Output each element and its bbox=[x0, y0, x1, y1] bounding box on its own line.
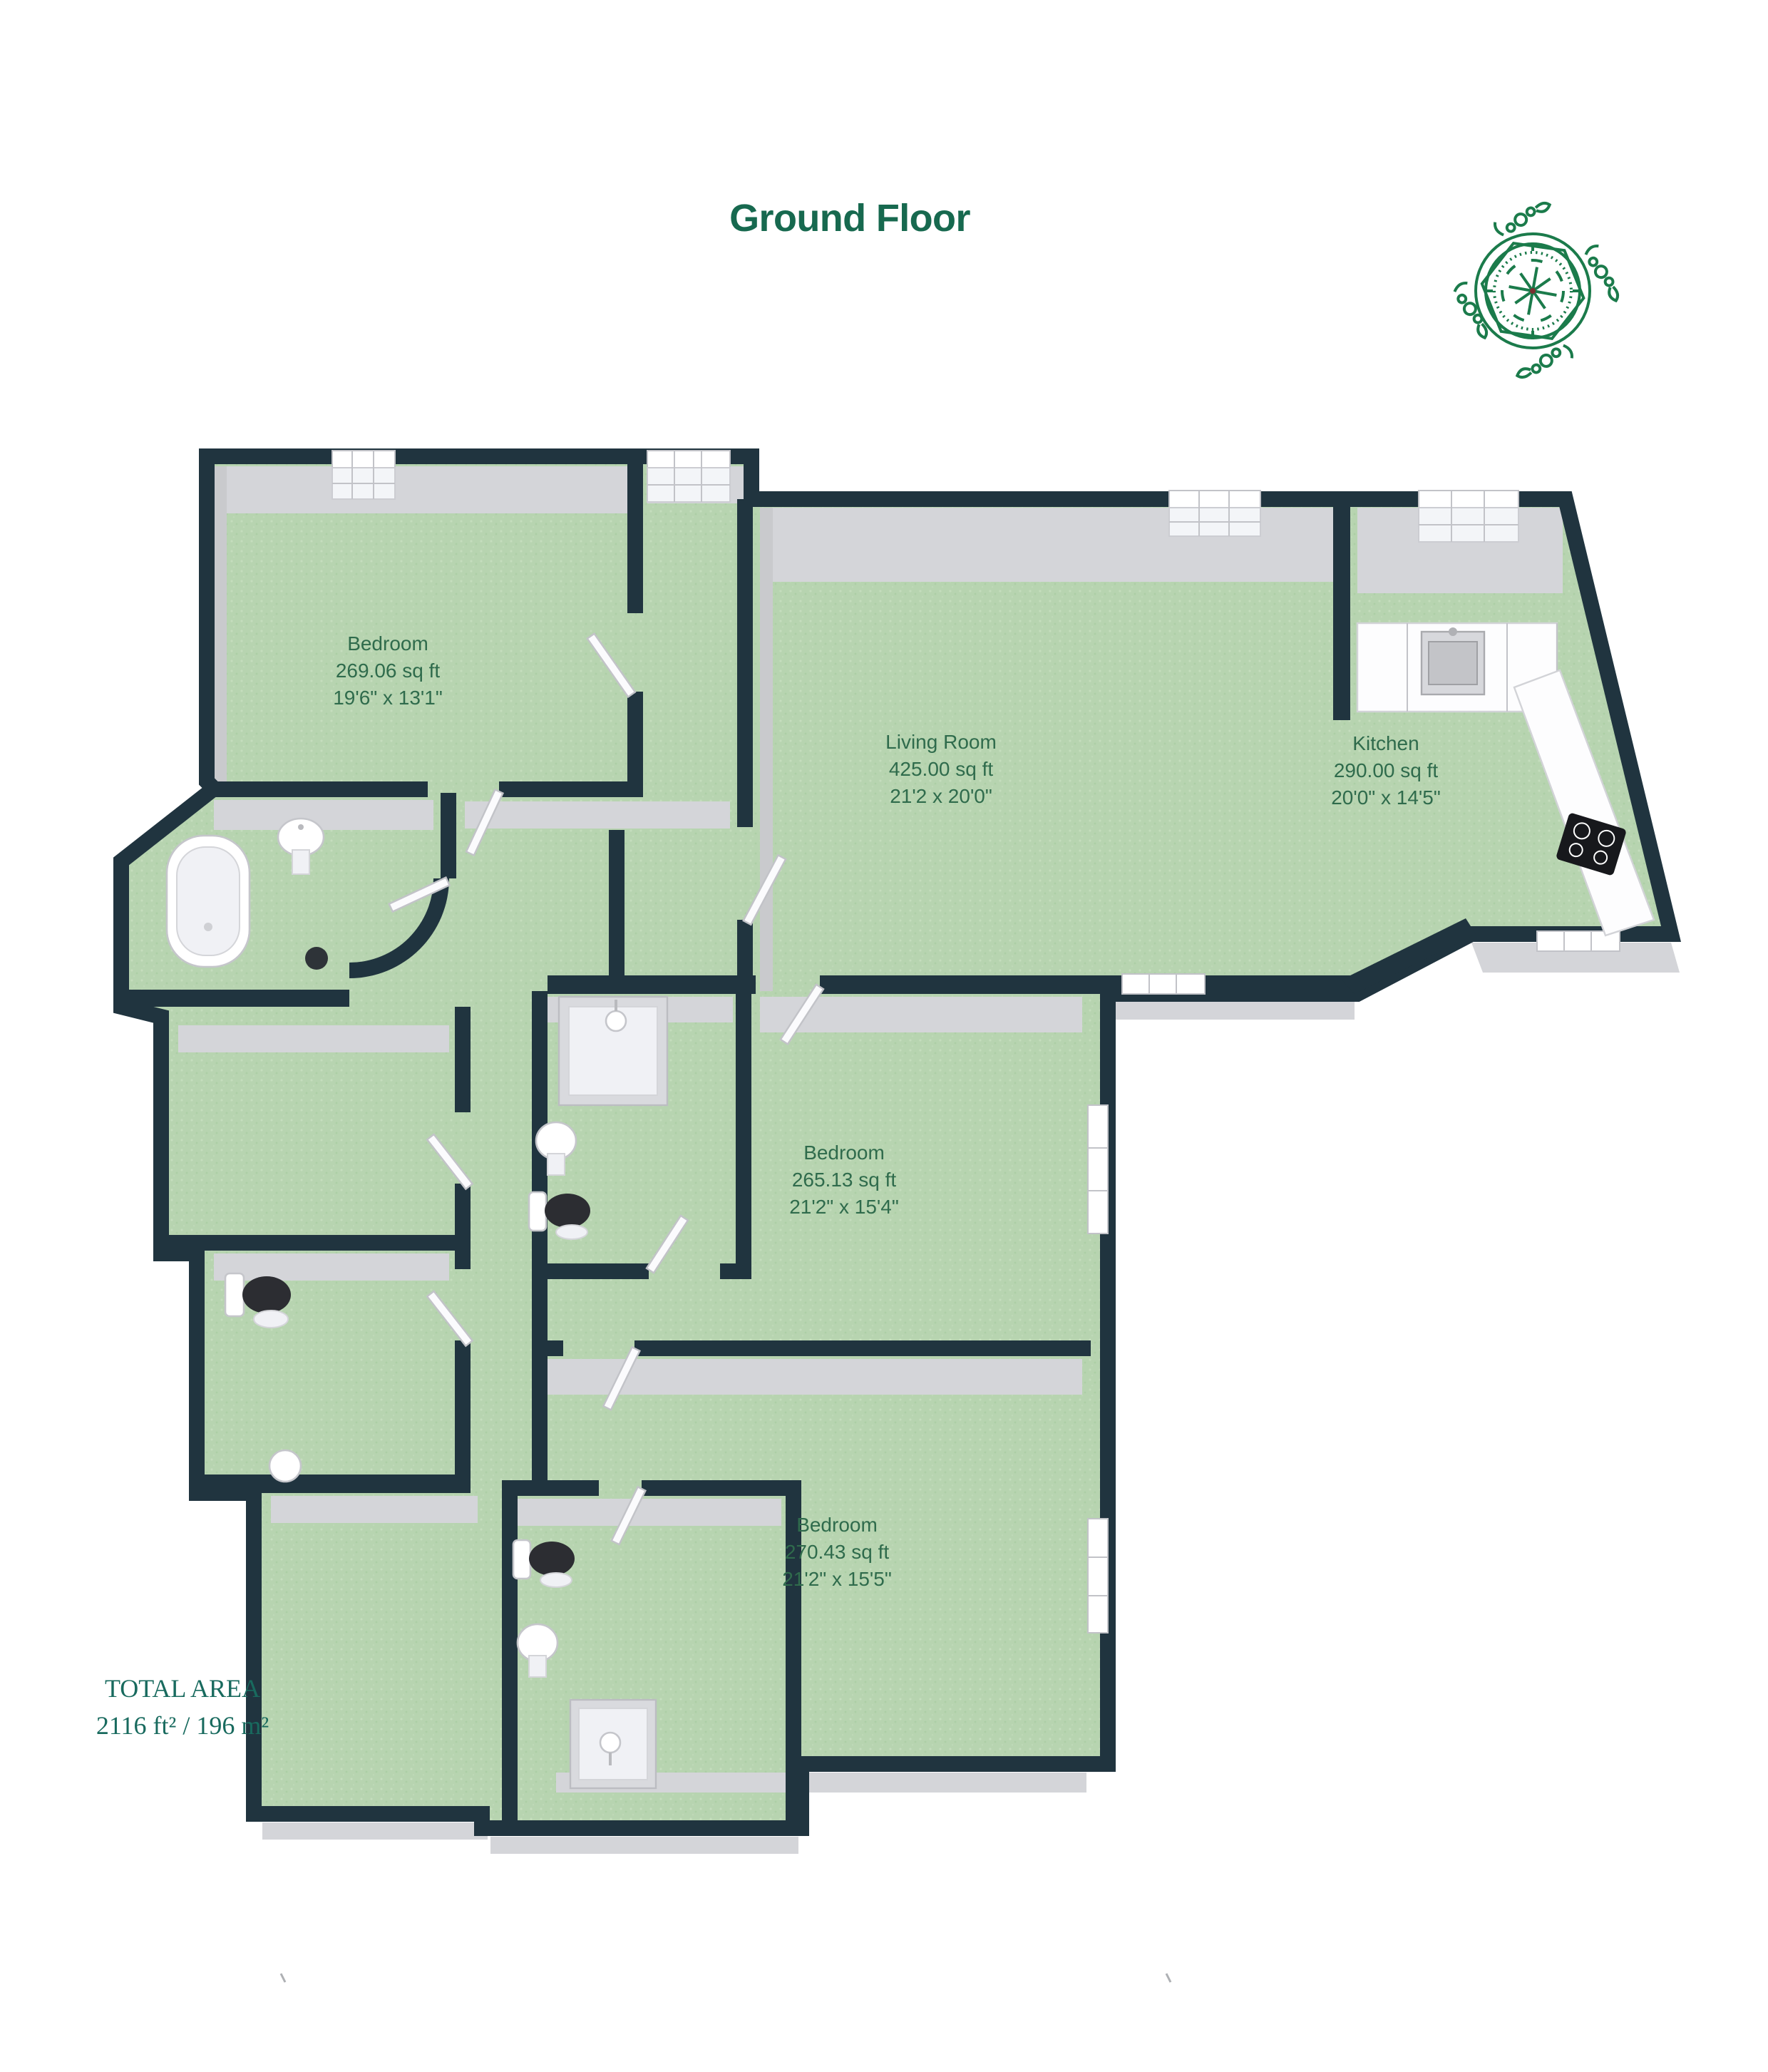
total-area-value: 2116 ft² / 196 m² bbox=[96, 1711, 269, 1740]
ensuite2-shower bbox=[570, 1700, 656, 1788]
room-area: 270.43 sq ft bbox=[785, 1541, 890, 1563]
window-living-top bbox=[1169, 491, 1260, 536]
window-bedroom2-right bbox=[1088, 1105, 1108, 1234]
window-bedroom3-right bbox=[1088, 1519, 1108, 1633]
room-area: 425.00 sq ft bbox=[889, 758, 994, 780]
room-dims: 21'2 x 20'0" bbox=[890, 785, 992, 807]
window-kitchen-top bbox=[1419, 491, 1518, 542]
kitchen-sink bbox=[1422, 627, 1484, 694]
room-area: 290.00 sq ft bbox=[1334, 759, 1439, 781]
window-lobby-top bbox=[647, 451, 730, 502]
wc-sink bbox=[269, 1450, 301, 1482]
compass-rose-logo-icon bbox=[1454, 202, 1619, 378]
floorplan-page: Ground Floor bbox=[0, 0, 1768, 2072]
room-area: 269.06 sq ft bbox=[336, 660, 441, 682]
scale-tick-right bbox=[1166, 1974, 1171, 1982]
room-name: Kitchen bbox=[1352, 732, 1419, 754]
room-name: Bedroom bbox=[796, 1514, 878, 1536]
room-dims: 20'0" x 14'5" bbox=[1331, 786, 1441, 809]
room-name: Living Room bbox=[885, 731, 997, 753]
page-title: Ground Floor bbox=[729, 197, 970, 240]
room-dims: 19'6" x 13'1" bbox=[333, 687, 443, 709]
ensuite1-shower bbox=[559, 997, 667, 1105]
room-name: Bedroom bbox=[803, 1142, 885, 1164]
total-area: TOTAL AREA 2116 ft² / 196 m² bbox=[96, 1674, 269, 1740]
floor-drain bbox=[305, 947, 328, 970]
room-area: 265.13 sq ft bbox=[792, 1169, 897, 1191]
room-dims: 21'2" x 15'5" bbox=[782, 1568, 892, 1590]
window-bedroom-top bbox=[332, 451, 395, 499]
room-name: Bedroom bbox=[347, 632, 428, 655]
room-label-bedroom-2: Bedroom 265.13 sq ft 21'2" x 15'4" bbox=[789, 1142, 899, 1218]
window-living-bottom bbox=[1122, 974, 1205, 994]
total-area-label: TOTAL AREA bbox=[105, 1674, 260, 1703]
room-label-bedroom-1: Bedroom 269.06 sq ft 19'6" x 13'1" bbox=[333, 632, 443, 709]
room-dims: 21'2" x 15'4" bbox=[789, 1196, 899, 1218]
scale-tick-left bbox=[281, 1974, 285, 1982]
room-label-bedroom-3: Bedroom 270.43 sq ft 21'2" x 15'5" bbox=[782, 1514, 892, 1590]
room-label-living-room: Living Room 425.00 sq ft 21'2 x 20'0" bbox=[885, 731, 997, 807]
